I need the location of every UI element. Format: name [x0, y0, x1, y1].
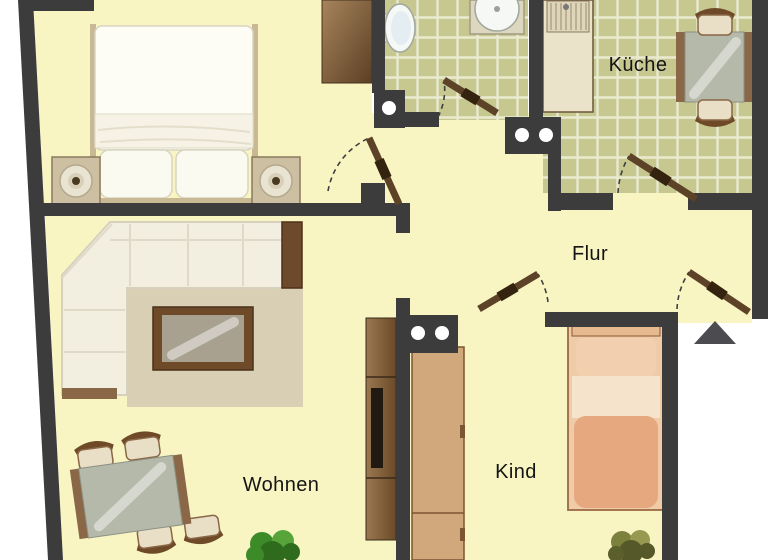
hinge-dot — [411, 326, 425, 340]
wall-bedroom-living — [40, 203, 410, 216]
wall-block-c — [402, 315, 458, 353]
lamp-icon — [60, 165, 92, 197]
wall-hall-living-top — [396, 203, 410, 233]
kitchen-chair-top — [695, 8, 735, 35]
tv — [371, 388, 383, 468]
tv-cabinet — [366, 318, 396, 540]
sofa-side-cabinet — [282, 222, 302, 288]
wardrobe-handle — [460, 528, 465, 541]
kitchen-counter-sink — [543, 0, 593, 112]
kitchen-chair-bottom — [695, 100, 735, 127]
wall-child-top — [545, 312, 677, 327]
room-label-wohnen: Wohnen — [243, 474, 320, 496]
room-label-flur: Flur — [572, 243, 608, 265]
wall-kitchen-bottom-left — [558, 193, 613, 210]
wall-bedroom-stub — [361, 183, 385, 204]
floorplan-svg: Küche Flur Wohnen Kind — [0, 0, 768, 560]
child-bed — [568, 320, 664, 510]
coffee-table — [153, 307, 253, 370]
room-label-kind: Kind — [495, 461, 537, 483]
wall-bath-kitchen — [529, 0, 543, 118]
hinge-dot — [539, 128, 553, 142]
sofa-end-table — [62, 388, 117, 399]
nightstand-lamp-left — [52, 157, 100, 205]
child-blanket-fold — [572, 376, 660, 418]
wall-right — [752, 0, 768, 319]
round-washbasin — [470, 0, 524, 34]
wardrobe-handle — [460, 425, 465, 438]
wall-kitchen-bottom-right — [688, 193, 753, 210]
room-label-kueche: Küche — [609, 54, 668, 76]
bedroom-wardrobe — [322, 0, 372, 83]
wall-top-stub — [28, 0, 94, 11]
child-duvet — [574, 416, 658, 508]
lamp-icon — [260, 165, 292, 197]
hinge-dot — [382, 101, 396, 115]
dining-table — [70, 454, 192, 539]
hinge-dot — [435, 326, 449, 340]
pillow-left — [100, 150, 172, 198]
wall-child-right — [662, 312, 678, 560]
pillow-right — [176, 150, 248, 198]
nightstand-lamp-right — [252, 157, 300, 205]
entrance-arrow-icon — [694, 321, 736, 344]
wall-bed-bath — [372, 0, 385, 93]
wall-bath-bottom — [398, 112, 439, 127]
floorplan-page: Küche Flur Wohnen Kind — [0, 0, 768, 560]
child-wardrobe — [412, 347, 465, 560]
hinge-dot — [515, 128, 529, 142]
faucet — [563, 4, 569, 10]
child-pillow — [576, 338, 656, 376]
kitchen-table — [676, 32, 753, 102]
